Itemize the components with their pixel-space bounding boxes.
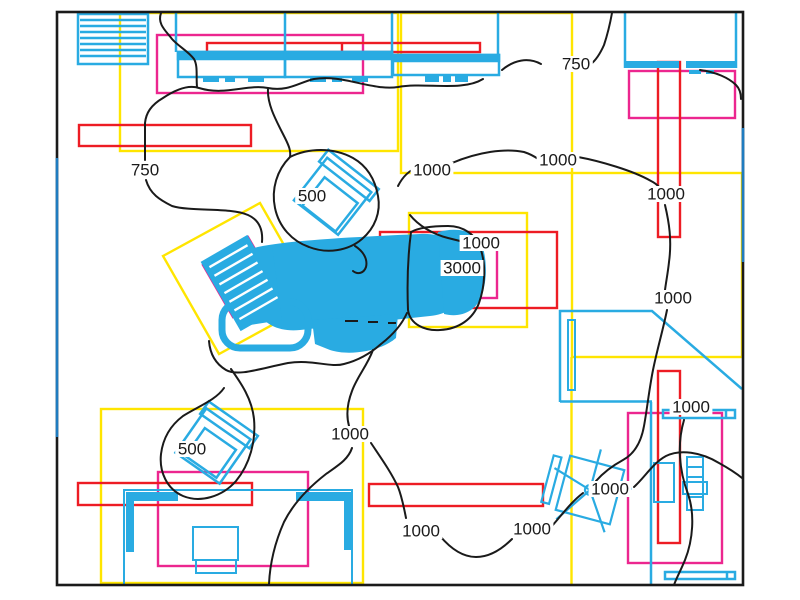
- wall-bar-bottom-right: [665, 572, 735, 579]
- wall-counter-right: [393, 13, 499, 82]
- contour-label: 3000: [443, 259, 481, 278]
- red-zone: [369, 484, 543, 506]
- red-zone: [79, 125, 251, 146]
- wall-counter-left: [176, 13, 285, 82]
- yellow-zone: [401, 13, 572, 173]
- contour-label: 1000: [672, 398, 710, 417]
- storage-shelf: [78, 14, 148, 64]
- equipment-cart: [683, 457, 707, 510]
- contour-label: 1000: [647, 185, 685, 204]
- contour-label: 1000: [413, 161, 451, 180]
- furniture: [78, 13, 742, 584]
- contour-label: 1000: [654, 289, 692, 308]
- red-zone: [207, 43, 480, 52]
- contour-label: 1000: [462, 234, 500, 253]
- red-zone: [658, 62, 680, 237]
- contour-label: 1000: [402, 522, 440, 541]
- contour-label: 1000: [331, 425, 369, 444]
- wall-counter-middle: [285, 13, 392, 82]
- contour-label: 1000: [539, 151, 577, 170]
- contour-label: 500: [298, 187, 326, 206]
- contour-label: 1000: [513, 520, 551, 539]
- contour-label: 750: [562, 55, 590, 74]
- floor-plan-drawing: 7507501000100050010003000100010001000500…: [0, 0, 800, 600]
- contour-label: 500: [178, 440, 206, 459]
- magenta-zone: [629, 71, 735, 118]
- cabinet-right: [560, 311, 742, 584]
- contour-label: 750: [131, 161, 159, 180]
- contour-label: 1000: [591, 480, 629, 499]
